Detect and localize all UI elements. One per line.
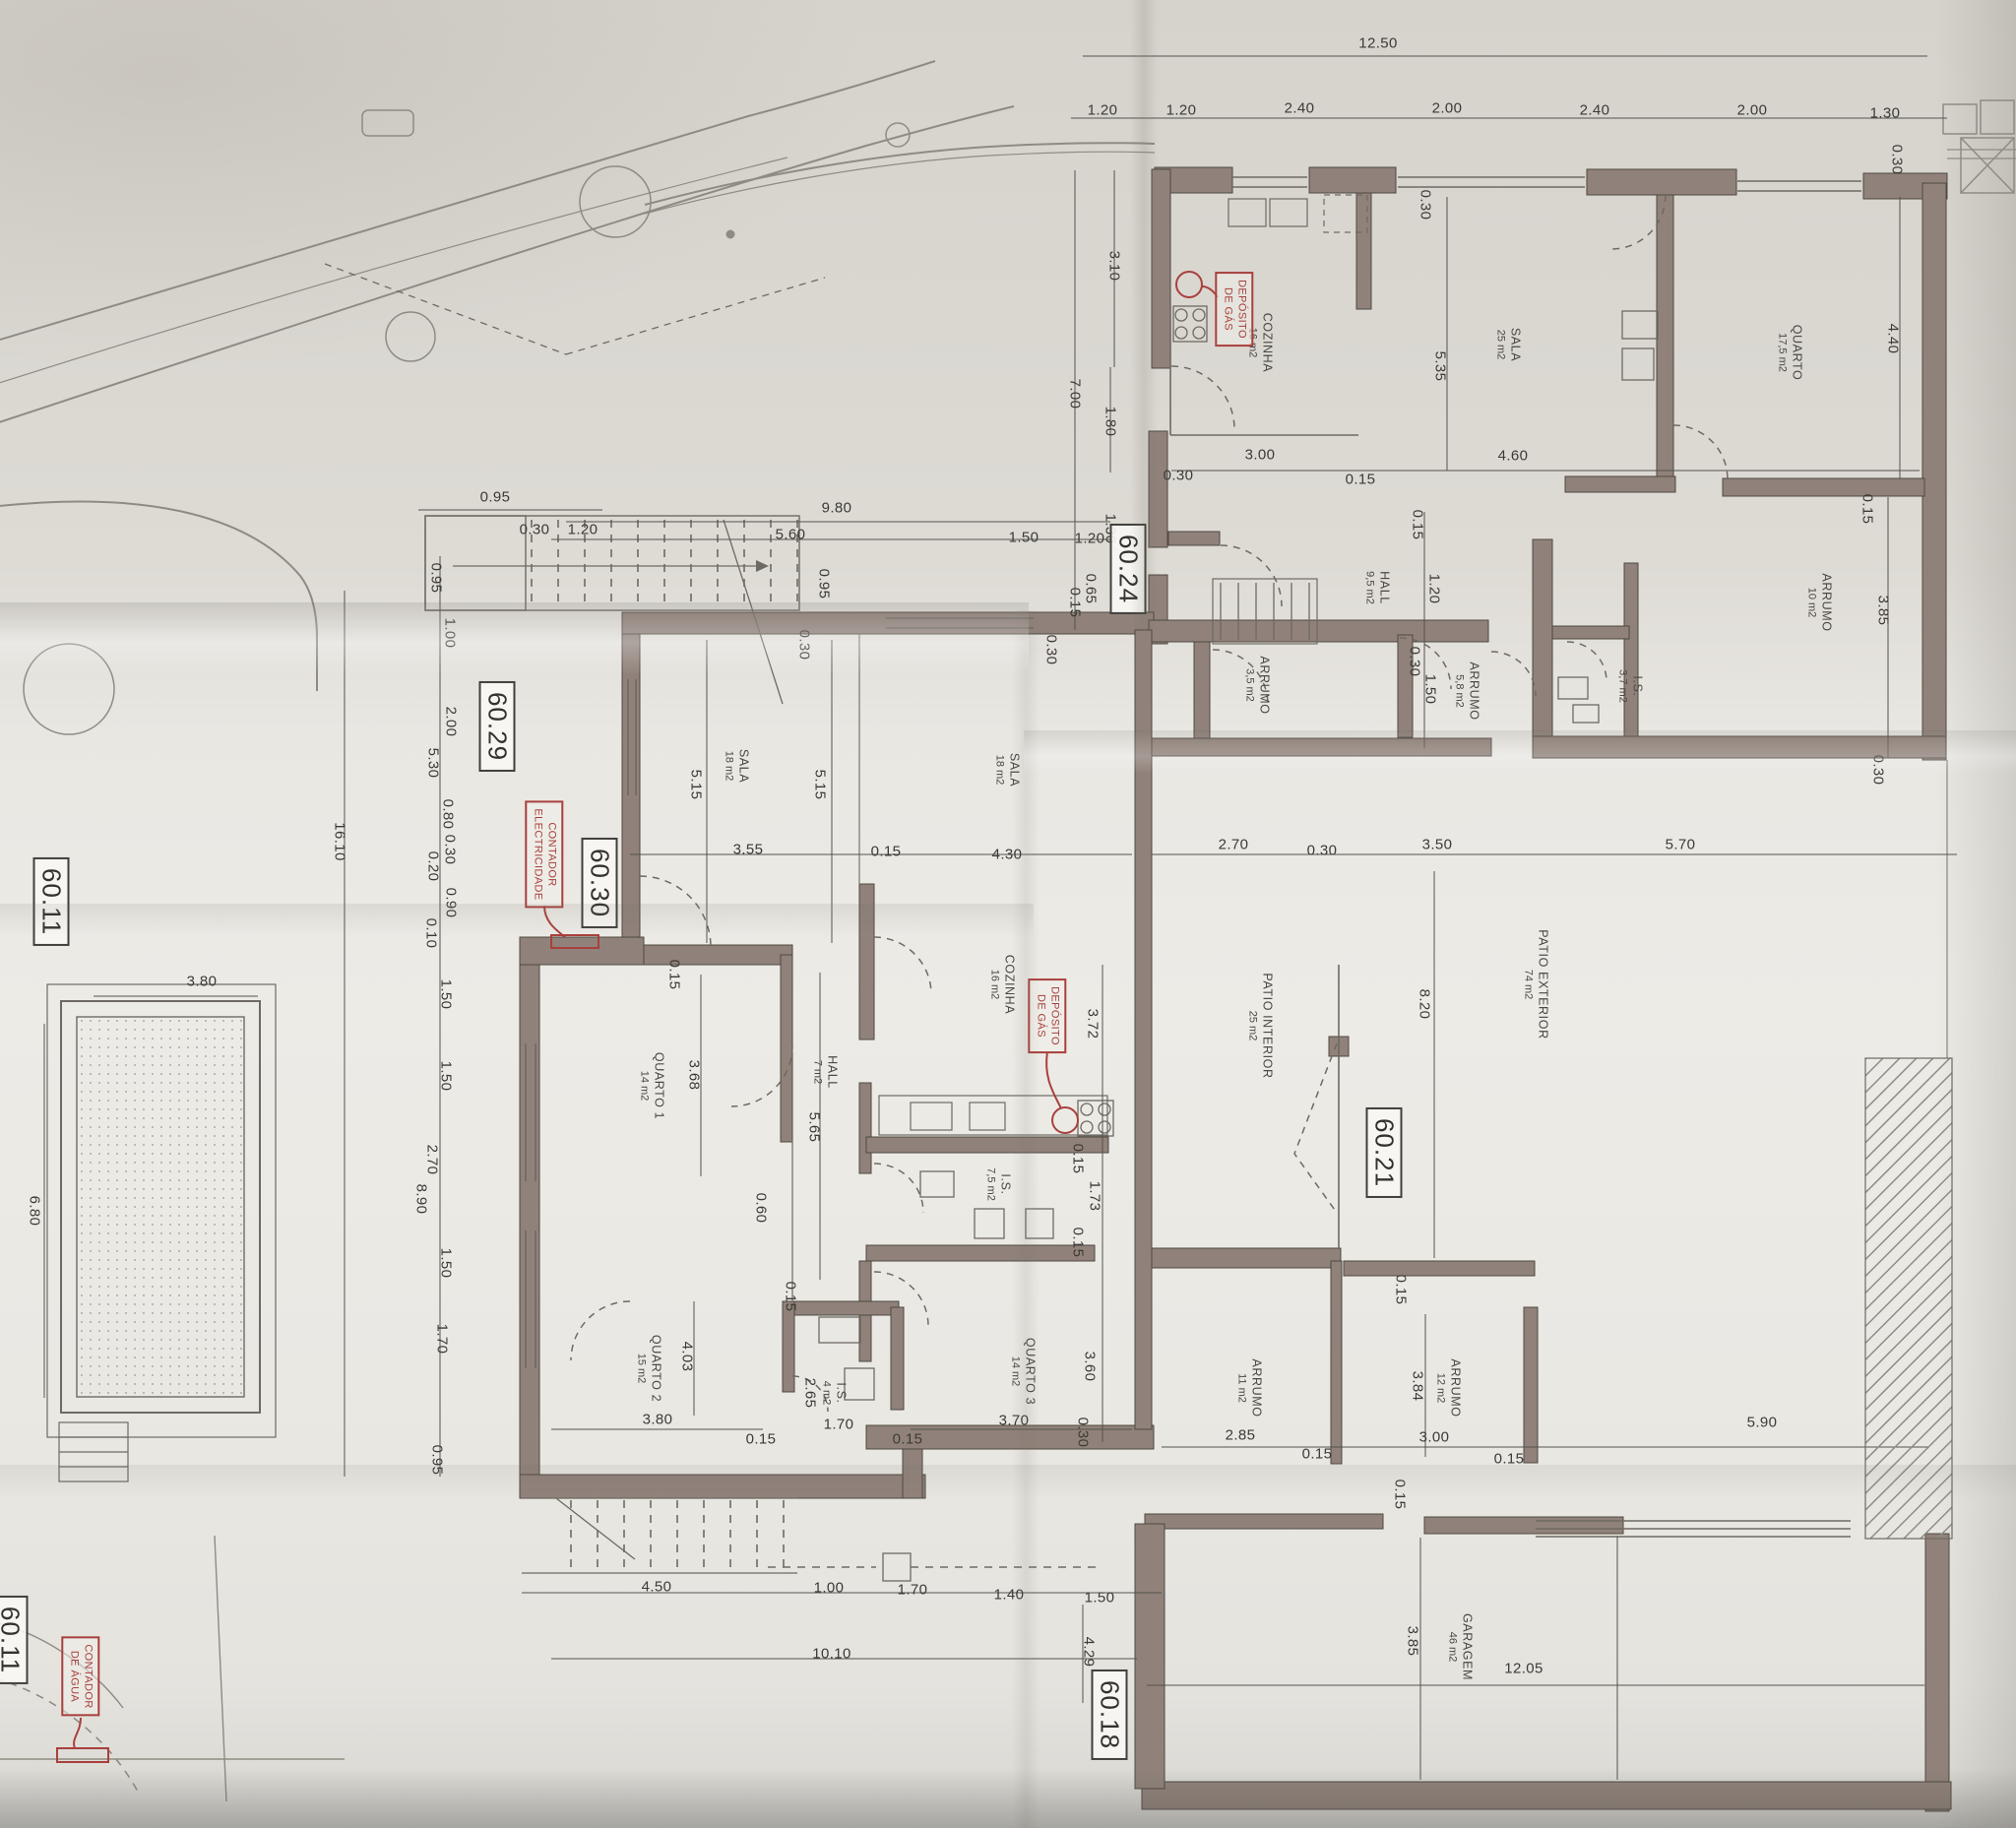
room-area: 12 m2 (1433, 1358, 1447, 1417)
room-label: ARRUMO10 m2 (1804, 573, 1833, 631)
dimension-label: 0.10 (423, 918, 440, 949)
dimension-label: 1.50 (438, 1248, 455, 1279)
dimension-label: 16.10 (332, 822, 348, 861)
dimension-label: 5.30 (425, 748, 442, 779)
room-label: SALA25 m2 (1493, 328, 1522, 361)
dimension-label: 1.70 (824, 1417, 854, 1433)
dimension-label: 3.84 (1410, 1371, 1426, 1402)
dimension-label: 0.30 (1889, 145, 1906, 175)
dimension-label: 0.15 (1346, 472, 1376, 488)
room-area: 14 m2 (637, 1052, 651, 1119)
room-area: 18 m2 (992, 753, 1006, 787)
dimension-label: 1.80 (1102, 407, 1119, 437)
dimension-label: 0.15 (1393, 1275, 1410, 1305)
room-name: QUARTO 1 (651, 1052, 666, 1119)
dimension-label: 0.95 (429, 1445, 446, 1476)
dimension-label: 6.80 (27, 1196, 43, 1227)
room-label: PATIO EXTERIOR74 m2 (1521, 929, 1549, 1039)
room-label: HALL7 m2 (810, 1055, 839, 1089)
red-annotation-line: DEPÓSITO (1234, 280, 1248, 339)
dimension-label: 12.50 (1358, 35, 1398, 52)
red-annotation: CONTADORELECTRICIDADE (526, 800, 564, 908)
room-label: QUARTO 114 m2 (637, 1052, 665, 1119)
dimension-label: 1.50 (438, 979, 455, 1010)
room-label: GARAGEM46 m2 (1445, 1613, 1474, 1680)
dimension-label: 1.70 (434, 1324, 451, 1355)
dimension-label: 1.20 (1166, 102, 1197, 119)
room-label: ARRUMO3,5 m2 (1242, 656, 1271, 714)
dimension-label: 2.00 (443, 707, 460, 737)
red-annotation-line: CONTADOR (544, 808, 558, 900)
dimension-label: 0.30 (1075, 1418, 1092, 1448)
plan-labels: 12.501.201.202.402.002.402.001.300.950.3… (0, 0, 2016, 1828)
dimension-label: 0.15 (1494, 1451, 1525, 1468)
dimension-label: 0.15 (666, 960, 683, 990)
dimension-label: 2.85 (1226, 1427, 1256, 1444)
room-name: SALA (1507, 328, 1523, 361)
red-annotation: DEPÓSITODE GÁS (1216, 272, 1254, 347)
room-area: 15 m2 (634, 1335, 648, 1402)
dimension-label: 5.90 (1747, 1415, 1778, 1431)
reference-mark: 60.30 (582, 838, 618, 928)
dimension-label: 4.03 (679, 1342, 696, 1372)
reference-mark: 60.24 (1110, 524, 1147, 614)
dimension-label: 4.60 (1498, 448, 1529, 465)
room-area: 46 m2 (1445, 1613, 1459, 1680)
dimension-label: 5.60 (776, 527, 806, 543)
room-area: 7,5 m2 (983, 1167, 997, 1201)
room-area: 3,5 m2 (1242, 656, 1256, 714)
dimension-label: 1.20 (1426, 574, 1443, 604)
dimension-label: 3.70 (999, 1413, 1030, 1429)
dimension-label: 1.73 (1087, 1181, 1103, 1212)
dimension-label: 3.80 (187, 974, 218, 990)
room-area: 18 m2 (722, 749, 735, 783)
dimension-label: 0.30 (520, 522, 550, 538)
dimension-label: 0.30 (1417, 190, 1434, 221)
dimension-label: 0.15 (1070, 1228, 1087, 1258)
room-name: HALL (1376, 571, 1392, 604)
red-annotation: CONTADORDE ÁGUA (62, 1636, 100, 1716)
dimension-label: 0.95 (480, 489, 511, 506)
dimension-label: 0.15 (1067, 588, 1084, 618)
room-area: 10 m2 (1804, 573, 1818, 631)
dimension-label: 0.30 (1870, 755, 1887, 786)
dimension-label: 0.30 (796, 630, 813, 661)
dimension-label: 5.15 (812, 770, 829, 800)
dimension-label: 5.70 (1666, 837, 1696, 853)
dimension-label: 4.29 (1081, 1637, 1098, 1668)
dimension-label: 1.20 (1088, 102, 1118, 119)
room-name: PATIO EXTERIOR (1535, 929, 1550, 1039)
dimension-label: 0.15 (871, 844, 902, 860)
room-label: ARRUMO11 m2 (1234, 1358, 1263, 1417)
dimension-label: 0.15 (1302, 1446, 1333, 1463)
room-name: ARRUMO (1447, 1358, 1463, 1417)
room-label: QUARTO 314 m2 (1008, 1338, 1037, 1405)
dimension-label: 2.65 (802, 1378, 819, 1409)
room-area: 3,7 m2 (1615, 669, 1629, 703)
room-label: PATIO INTERIOR25 m2 (1245, 973, 1274, 1078)
dimension-label: 1.00 (442, 618, 459, 649)
dimension-label: 0.65 (1083, 574, 1100, 604)
room-name: QUARTO 2 (648, 1335, 663, 1402)
room-label: ARRUMO12 m2 (1433, 1358, 1462, 1417)
dimension-label: 2.00 (1737, 102, 1768, 119)
dimension-label: 7.00 (1067, 379, 1084, 410)
room-name: SALA (1006, 753, 1022, 787)
room-label: ARRUMO5,8 m2 (1452, 662, 1480, 720)
room-area: 16 m2 (987, 955, 1001, 1014)
room-name: ARRUMO (1256, 656, 1272, 714)
floor-plan-sheet: 12.501.201.202.402.002.402.001.300.950.3… (0, 0, 2016, 1828)
room-name: ARRUMO (1466, 662, 1481, 720)
room-name: COZINHA (1001, 955, 1017, 1014)
dimension-label: 2.70 (424, 1145, 441, 1175)
reference-mark: 60.21 (1366, 1107, 1403, 1198)
room-name: I.S. (997, 1167, 1013, 1201)
dimension-label: 3.55 (733, 842, 764, 858)
reference-mark: 60.29 (479, 681, 516, 772)
dimension-label: 1.50 (1085, 1590, 1115, 1607)
red-annotation-line: DEPÓSITO (1047, 986, 1061, 1045)
red-annotation: DEPÓSITODE GÁS (1029, 978, 1067, 1053)
room-name: SALA (735, 749, 751, 783)
dimension-label: 1.40 (994, 1587, 1025, 1604)
dimension-label: 2.00 (1432, 100, 1463, 117)
dimension-label: 1.50 (1422, 674, 1439, 705)
room-name: I.S. (1629, 669, 1645, 703)
reference-mark: 60.11 (33, 857, 70, 946)
dimension-label: 0.15 (1070, 1144, 1087, 1174)
red-annotation-line: CONTADOR (81, 1644, 94, 1708)
dimension-label: 3.50 (1422, 837, 1453, 853)
dimension-label: 8.90 (413, 1184, 430, 1215)
dimension-label: 3.10 (1106, 251, 1123, 282)
room-area: 17,5 m2 (1775, 325, 1789, 381)
dimension-label: 10.10 (812, 1646, 851, 1663)
room-area: 14 m2 (1008, 1338, 1022, 1405)
room-name: QUARTO (1789, 325, 1804, 381)
dimension-label: 4.30 (992, 847, 1023, 863)
dimension-label: 12.05 (1504, 1661, 1543, 1677)
dimension-label: 3.72 (1085, 1009, 1102, 1040)
room-label: SALA18 m2 (992, 753, 1021, 787)
room-label: HALL9,5 m2 (1362, 571, 1391, 604)
dimension-label: 1.20 (568, 522, 598, 538)
room-label: I.S.7,5 m2 (983, 1167, 1012, 1201)
dimension-label: 3.00 (1419, 1429, 1450, 1446)
dimension-label: 1.30 (1870, 105, 1901, 122)
red-annotation-line: DE GÁS (1221, 280, 1234, 339)
room-name: GARAGEM (1459, 1613, 1475, 1680)
dimension-label: 3.60 (1082, 1352, 1099, 1382)
red-annotation-line: DE GÁS (1034, 986, 1047, 1045)
room-name: ARRUMO (1248, 1358, 1264, 1417)
room-area: 4 m2 (819, 1381, 833, 1405)
room-name: PATIO INTERIOR (1259, 973, 1275, 1078)
room-label: COZINHA16 m2 (987, 955, 1016, 1014)
room-name: ARRUMO (1818, 573, 1834, 631)
dimension-label: 0.15 (1859, 494, 1876, 525)
dimension-label: 1.00 (814, 1580, 845, 1597)
room-label: QUARTO 215 m2 (634, 1335, 662, 1402)
dimension-label: 1.50 (1009, 530, 1039, 546)
dimension-label: 0.15 (1392, 1480, 1409, 1510)
dimension-label: 0.15 (783, 1282, 799, 1312)
room-area: 74 m2 (1521, 929, 1535, 1039)
dimension-label: 0.60 (753, 1193, 770, 1224)
room-name: I.S. (833, 1381, 849, 1405)
dimension-label: 4.40 (1885, 324, 1902, 354)
room-area: 5,8 m2 (1452, 662, 1466, 720)
room-name: QUARTO 3 (1022, 1338, 1038, 1405)
reference-mark: 60.18 (1092, 1670, 1128, 1760)
dimension-label: 5.65 (806, 1112, 823, 1143)
dimension-label: 2.70 (1219, 837, 1249, 853)
dimension-label: 4.50 (642, 1579, 672, 1596)
dimension-label: 5.35 (1432, 351, 1449, 382)
red-annotation-line: ELECTRICIDADE (531, 808, 544, 900)
room-label: I.S.3,7 m2 (1615, 669, 1644, 703)
red-annotation-line: DE ÁGUA (67, 1644, 81, 1708)
room-name: HALL (824, 1055, 840, 1089)
dimension-label: 0.80 (440, 799, 457, 830)
dimension-label: 3.80 (643, 1412, 673, 1428)
room-area: 25 m2 (1245, 973, 1259, 1078)
room-area: 9,5 m2 (1362, 571, 1376, 604)
reference-mark: 60.11 (0, 1596, 29, 1684)
dimension-label: 3.85 (1875, 596, 1892, 626)
dimension-label: 0.20 (425, 851, 442, 882)
dimension-label: 0.90 (443, 888, 460, 918)
dimension-label: 1.20 (1075, 531, 1105, 547)
dimension-label: 0.15 (746, 1431, 777, 1448)
room-area: 25 m2 (1493, 328, 1507, 361)
room-label: SALA18 m2 (722, 749, 750, 783)
dimension-label: 0.30 (1164, 468, 1194, 484)
dimension-label: 0.30 (1407, 647, 1423, 677)
dimension-label: 3.85 (1405, 1626, 1421, 1657)
dimension-label: 0.15 (1410, 510, 1426, 540)
dimension-label: 8.20 (1417, 989, 1433, 1020)
room-area: 11 m2 (1234, 1358, 1248, 1417)
dimension-label: 5.15 (688, 770, 705, 800)
room-name: COZINHA (1259, 313, 1275, 372)
room-area: 7 m2 (810, 1055, 824, 1089)
dimension-label: 3.00 (1245, 447, 1276, 464)
dimension-label: 2.40 (1285, 100, 1315, 117)
dimension-label: 1.70 (898, 1582, 928, 1599)
dimension-label: 1.50 (438, 1061, 455, 1092)
dimension-label: 0.95 (428, 563, 445, 594)
room-label: I.S.4 m2 (819, 1381, 848, 1405)
dimension-label: 0.95 (816, 569, 833, 599)
room-label: QUARTO17,5 m2 (1775, 325, 1803, 381)
dimension-label: 2.40 (1580, 102, 1610, 119)
dimension-label: 0.30 (1307, 843, 1338, 859)
dimension-label: 9.80 (822, 500, 852, 517)
dimension-label: 3.68 (686, 1060, 703, 1091)
dimension-label: 0.30 (442, 835, 459, 865)
dimension-label: 0.30 (1043, 635, 1060, 665)
dimension-label: 0.15 (893, 1431, 923, 1448)
